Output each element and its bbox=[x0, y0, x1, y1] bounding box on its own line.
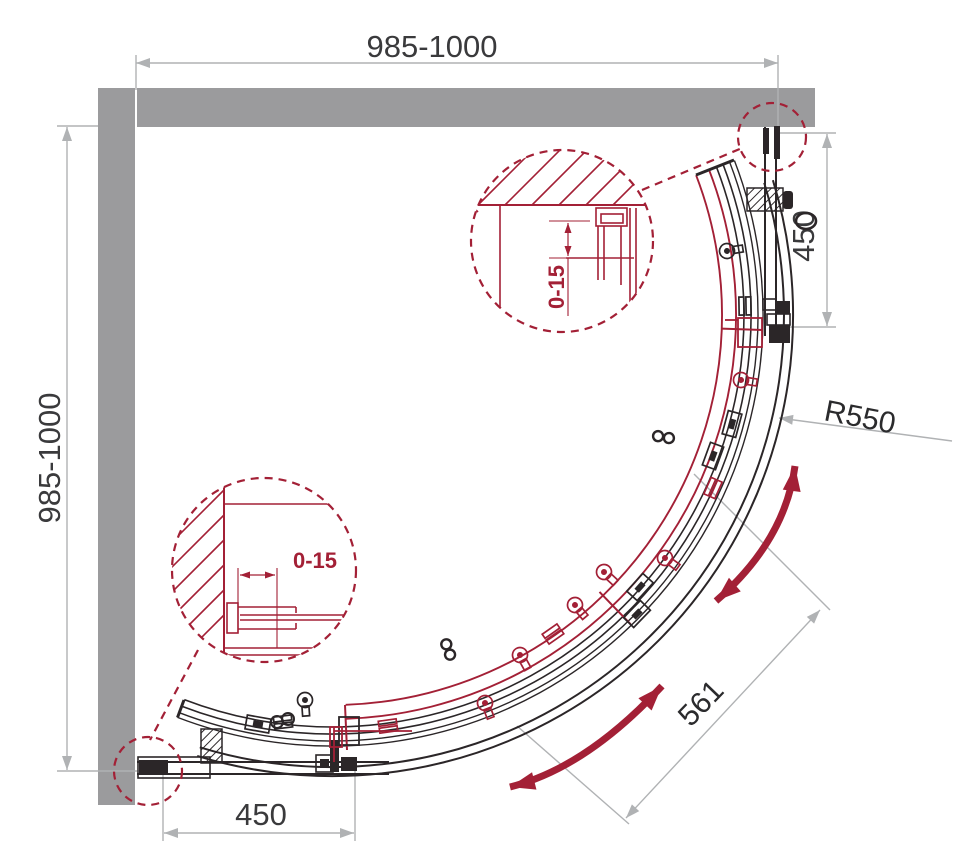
panel-clip-3 bbox=[767, 314, 790, 325]
panel-end-cap bbox=[139, 760, 168, 774]
wall-bracket-hatched-bottom bbox=[201, 729, 222, 763]
label-detail-top-adjust: 0-15 bbox=[544, 265, 569, 309]
detail-leader-top bbox=[642, 148, 742, 190]
bracket-black bbox=[624, 601, 651, 628]
wall-top bbox=[98, 88, 815, 127]
panel-clip-2 bbox=[775, 301, 790, 314]
drawing-canvas: 985-1000 985-1000 450 450 561 bbox=[0, 0, 970, 864]
bracket-bolt bbox=[783, 191, 793, 209]
panel-foot-bracket bbox=[769, 325, 790, 343]
dimension-diagonal-opening: 561 bbox=[517, 474, 830, 824]
outer-rim-arc-1 bbox=[200, 183, 784, 767]
detail-bottom-wall-section bbox=[168, 478, 224, 657]
label-radius: R550 bbox=[822, 394, 899, 440]
label-bottom-panel: 450 bbox=[235, 797, 287, 832]
roller-red bbox=[593, 561, 620, 588]
label-detail-bottom-adjust: 0-15 bbox=[293, 548, 337, 573]
glass-edge-cap-bottom bbox=[178, 700, 185, 718]
label-top-width: 985-1000 bbox=[366, 29, 497, 64]
detail-bottom-profile bbox=[224, 504, 350, 655]
door-handle-knob bbox=[652, 430, 674, 443]
sliding-door-glass-arc-2 bbox=[346, 170, 736, 719]
dimension-bottom-panel: 450 bbox=[163, 768, 355, 841]
wall-left bbox=[98, 127, 135, 805]
door-handle-knob bbox=[440, 638, 457, 661]
door-edge-cap-bottom bbox=[345, 705, 347, 750]
detail-leader-bottom bbox=[150, 650, 198, 740]
roller-red bbox=[510, 645, 535, 673]
detail-top-wall-section bbox=[471, 143, 662, 212]
glass-edge-cap-top bbox=[696, 160, 734, 175]
panel-top-profile-2 bbox=[774, 126, 780, 159]
dimension-radius: R550 bbox=[779, 394, 952, 441]
label-diagonal-opening: 561 bbox=[672, 674, 731, 733]
clamp-black bbox=[739, 297, 751, 315]
track-hardware bbox=[245, 241, 758, 733]
shower-enclosure-technical-drawing: 985-1000 985-1000 450 450 561 bbox=[0, 0, 970, 864]
dimension-lines: 985-1000 985-1000 450 450 561 bbox=[32, 29, 952, 841]
door-edge-cap-right bbox=[722, 329, 763, 330]
door-swing-arrow-lower bbox=[510, 686, 662, 787]
bracket-black bbox=[702, 442, 723, 469]
wall-bracket-hatched bbox=[747, 188, 783, 211]
track-arc-1 bbox=[184, 167, 744, 727]
label-left-height: 985-1000 bbox=[32, 392, 67, 523]
track-arc-4 bbox=[178, 161, 764, 747]
roller-black bbox=[297, 692, 314, 716]
panel-top-profile bbox=[763, 128, 769, 154]
detail-callout-top: 0-15 bbox=[471, 103, 806, 333]
